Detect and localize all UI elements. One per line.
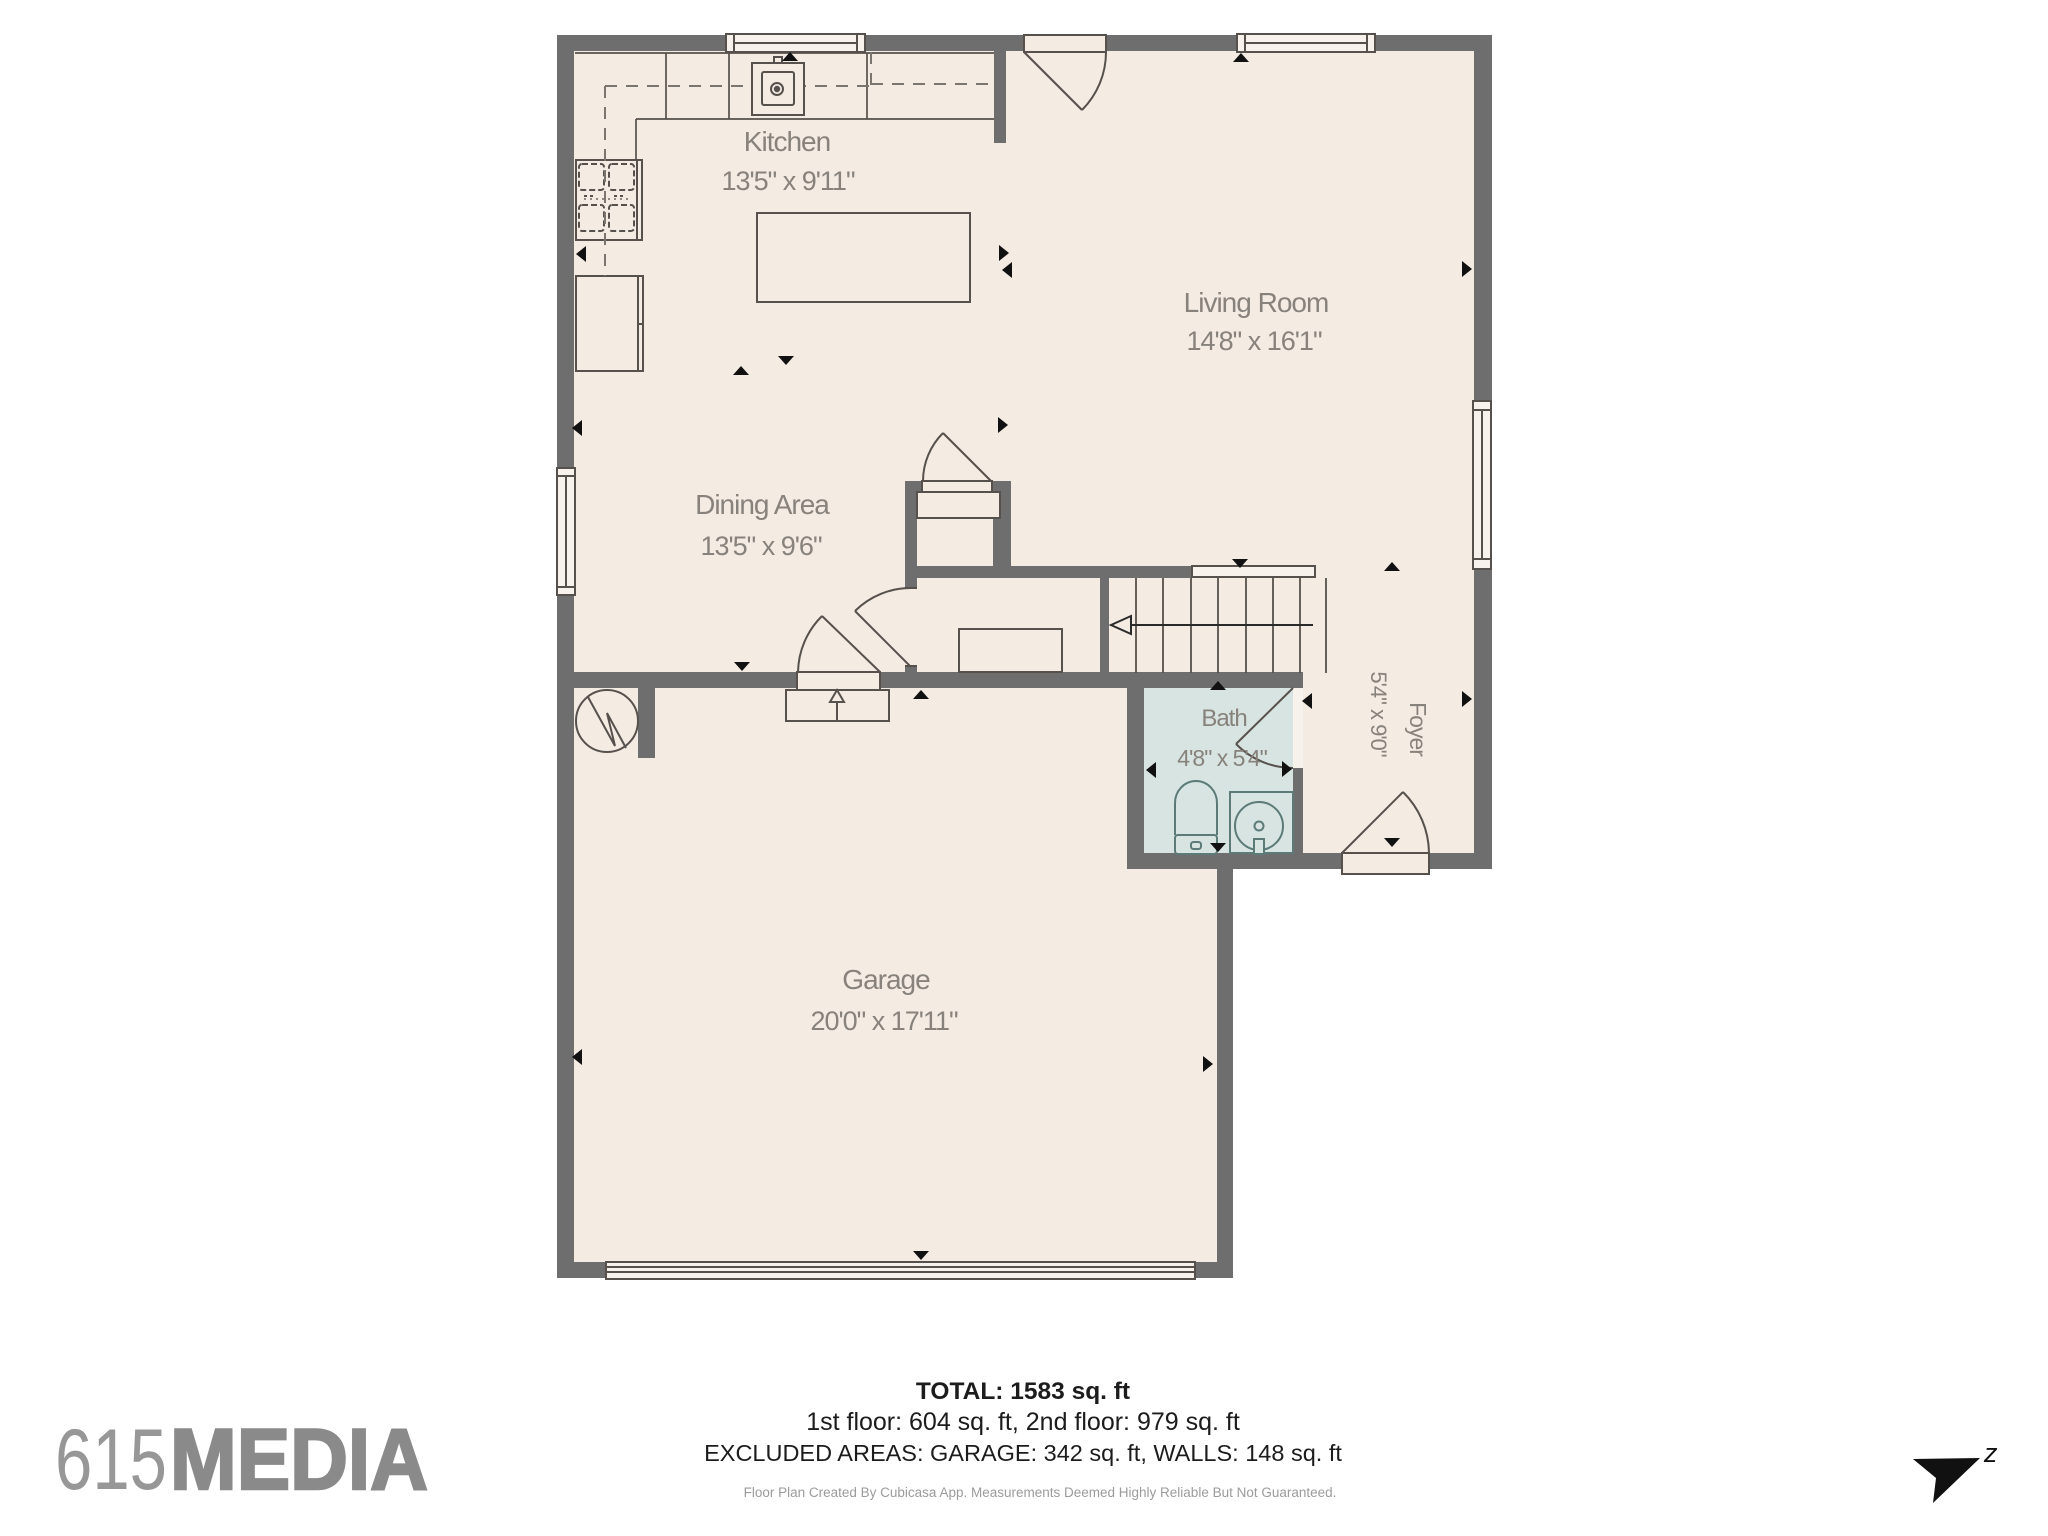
svg-text:1st floor: 604 sq. ft, 2nd flo: 1st floor: 604 sq. ft, 2nd floor: 979 sq… (806, 1408, 1240, 1436)
svg-text:MEDIA: MEDIA (170, 1412, 428, 1508)
svg-text:Bath: Bath (1201, 705, 1246, 732)
svg-text:Floor Plan Created By Cubicasa: Floor Plan Created By Cubicasa App. Meas… (744, 1485, 1337, 1500)
svg-text:z: z (1983, 1438, 1998, 1468)
svg-text:Foyer: Foyer (1405, 702, 1431, 757)
svg-text:20'0" x 17'11": 20'0" x 17'11" (810, 1006, 958, 1036)
svg-text:13'5" x 9'11": 13'5" x 9'11" (721, 166, 854, 196)
svg-text:4'8" x 5'4": 4'8" x 5'4" (1177, 745, 1267, 771)
svg-text:Garage: Garage (842, 964, 930, 995)
svg-text:5'4" x 9'0": 5'4" x 9'0" (1366, 671, 1391, 756)
svg-text:Kitchen: Kitchen (744, 126, 830, 157)
svg-text:EXCLUDED AREAS: GARAGE: 342 sq: EXCLUDED AREAS: GARAGE: 342 sq. ft, WALL… (704, 1440, 1342, 1466)
svg-text:13'5" x 9'6": 13'5" x 9'6" (700, 531, 821, 561)
svg-text:TOTAL: 1583 sq. ft: TOTAL: 1583 sq. ft (916, 1378, 1130, 1405)
svg-text:Dining Area: Dining Area (695, 489, 830, 520)
svg-text:Living Room: Living Room (1184, 287, 1329, 318)
svg-text:14'8" x 16'1": 14'8" x 16'1" (1186, 326, 1321, 356)
svg-text:615: 615 (55, 1412, 167, 1508)
